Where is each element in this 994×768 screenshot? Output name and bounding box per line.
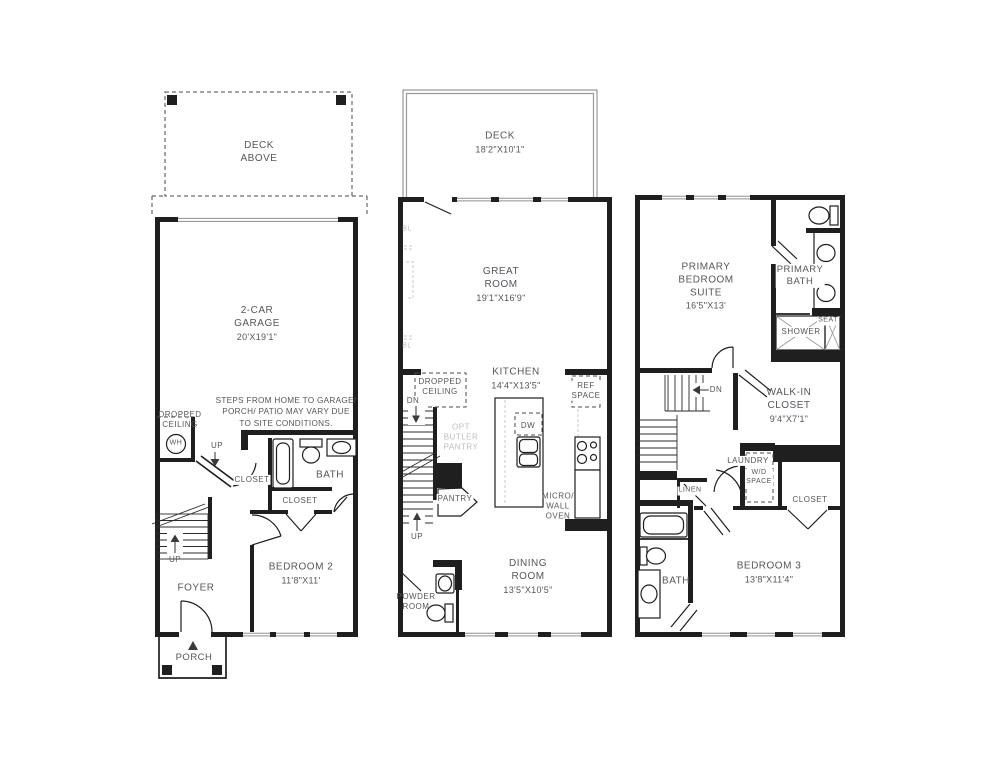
wd-space-label: W/D SPACE (745, 469, 773, 487)
bedroom2-label: BEDROOM 211'8"X11' (269, 561, 334, 586)
ref-space-label: REF SPACE (570, 381, 601, 401)
closet-door-icon (286, 514, 301, 531)
range-icon (575, 437, 600, 470)
toilet-icon (445, 604, 453, 622)
bath-label: BATH (662, 576, 690, 589)
opt-butler-pantry-label: OPT BUTLER PANTRY (444, 423, 479, 454)
deck-above-label: DECK ABOVE (241, 140, 278, 166)
bedroom3-door-icon (704, 508, 730, 535)
primary-suite-label: PRIMARY BEDROOM SUITE16'5"X13' (678, 262, 733, 313)
bl-mark-label: BL (402, 343, 412, 352)
up-label: UP (410, 532, 424, 542)
window-icon (243, 633, 337, 636)
down-label: DN (709, 385, 724, 395)
water-heater-label: WH (170, 440, 183, 449)
shower-label: SHOWER (781, 327, 822, 337)
kitchen-label: KITCHEN14'4"X13'5" (491, 366, 540, 391)
entry-arrow-icon (188, 641, 198, 650)
laundry-label: LAUNDRY (726, 456, 770, 466)
window-icon (702, 633, 822, 636)
floorplan-canvas: DECK ABOVE 2-CAR GARAGE20'X19'1" STEPS F… (0, 0, 994, 768)
toilet-icon (300, 439, 322, 447)
deck-post-icon (167, 95, 177, 105)
kitchen-island (495, 398, 543, 507)
door-arc-icon (712, 347, 733, 368)
closet-double-door-icon (788, 510, 827, 529)
window-icon (457, 198, 568, 201)
dishwasher-label: DW (520, 421, 536, 431)
primary-bath-label: PRIMARY BATH (776, 264, 825, 288)
stair-break-line (152, 504, 209, 527)
door-arc-icon (716, 470, 742, 498)
dining-room-label: DINING ROOM13'5"X10'5" (503, 558, 552, 596)
garage-door-icon (178, 218, 338, 221)
great-room-wall-marks (404, 246, 413, 339)
down-label: DN (406, 396, 421, 406)
bedroom3-label: BEDROOM 313'8"X11'4" (737, 560, 802, 585)
deck-post-icon (336, 95, 346, 105)
great-room-label: GREAT ROOM19'1"X16'9" (476, 266, 525, 304)
dropped-ceiling-label: DROPPED CEILING (417, 377, 462, 397)
toilet-icon (830, 206, 838, 225)
pantry-label: PANTRY (437, 494, 474, 504)
porch-post-icon (212, 665, 222, 675)
door-arc-icon (252, 515, 281, 536)
micro-wall-oven-label: MICRO/ WALL OVEN (542, 492, 574, 523)
site-conditions-note: STEPS FROM HOME TO GARAGE/ PORCH/ PATIO … (216, 395, 357, 429)
dropped-ceiling-label: DROPPED CEILING (158, 410, 201, 430)
walk-in-closet-label: WALK-IN CLOSET9'4"X7'1" (767, 387, 812, 425)
bath-door-icon (671, 604, 697, 631)
up-garage-label: UP (211, 441, 223, 451)
optional-fireplace-mark (406, 262, 413, 298)
hall-bath-fixtures (638, 513, 688, 618)
door-leaf-icon (401, 572, 421, 591)
up-stairs-label: UP (169, 555, 181, 565)
window-icon (465, 633, 581, 636)
bl-mark-label: BL (402, 226, 412, 235)
seat-label: SEAT (817, 317, 839, 326)
deck-door-icon (425, 202, 451, 214)
deck-label: DECK18'2"X10'1" (475, 130, 524, 155)
porch-label: PORCH (176, 652, 213, 664)
closet-label: CLOSET (791, 495, 828, 505)
closet-label: CLOSET (233, 475, 270, 485)
closet-label: CLOSET (282, 496, 317, 506)
foyer-label: FOYER (178, 583, 215, 596)
wall-oven-icon (575, 470, 600, 518)
sink-icon (817, 245, 835, 262)
window-icon (662, 196, 750, 199)
garage-label: 2-CAR GARAGE20'X19'1" (234, 305, 280, 343)
powder-room-label: POWDER ROOM (397, 592, 436, 612)
linen-label: LINEN (677, 487, 702, 496)
porch-post-icon (162, 665, 172, 675)
second-floor-plan (398, 90, 612, 637)
bath-label: BATH (316, 470, 344, 483)
